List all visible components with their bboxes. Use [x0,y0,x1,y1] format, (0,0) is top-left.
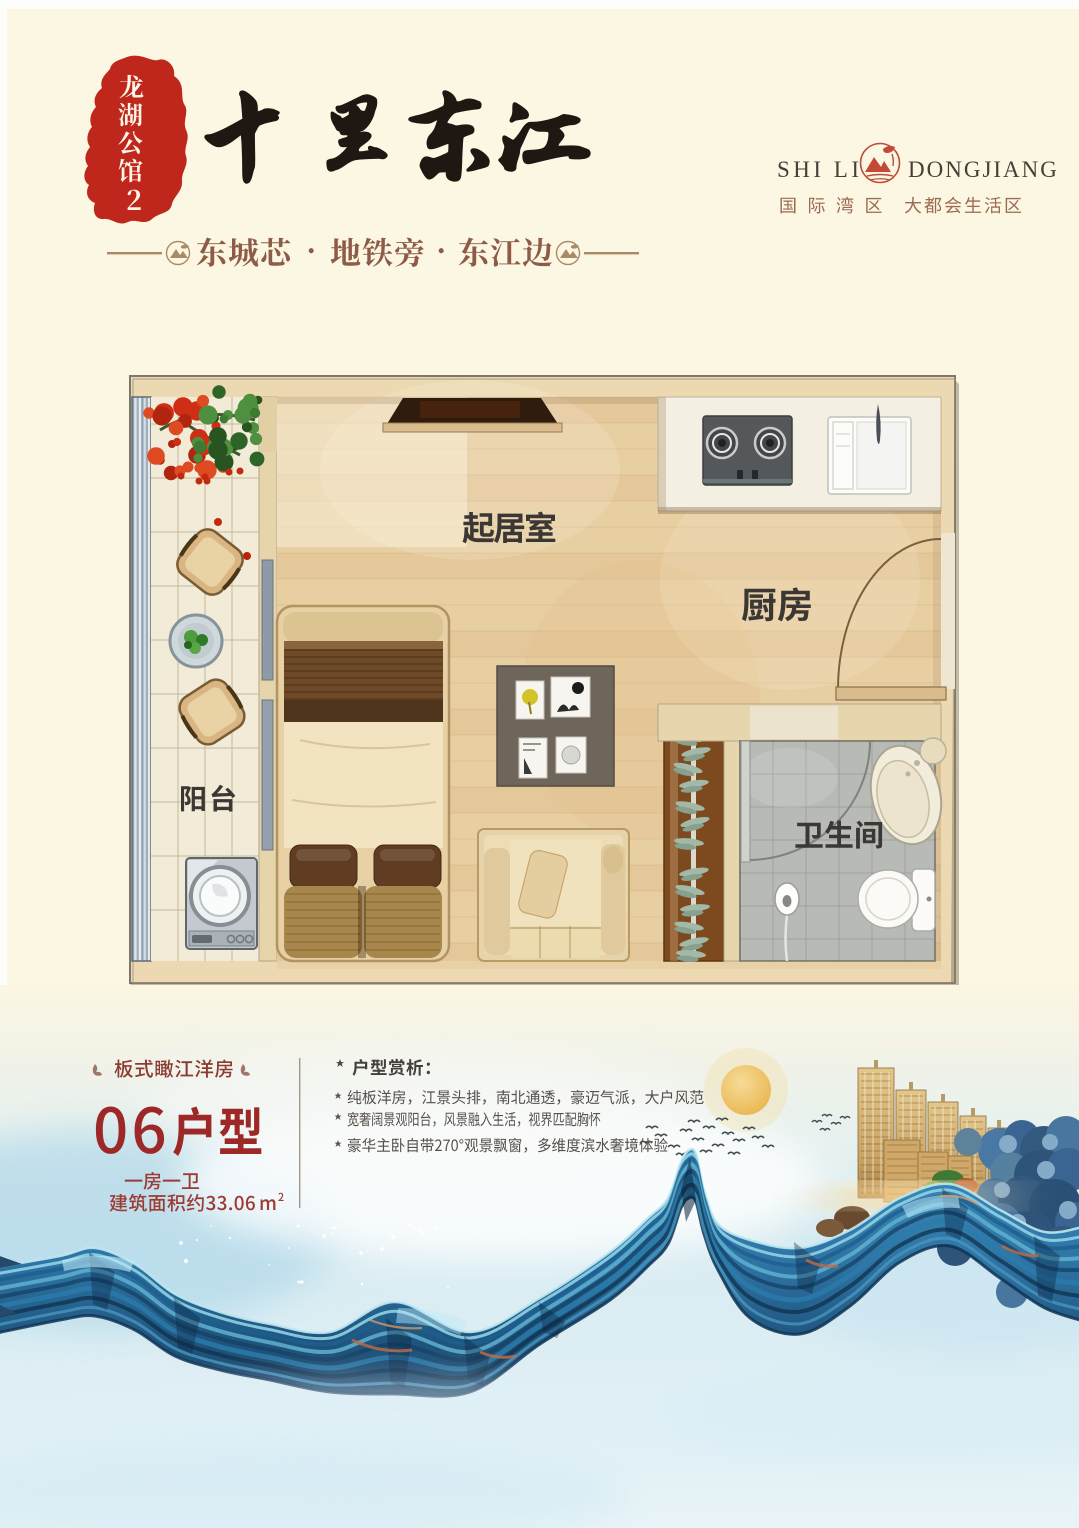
svg-text:DONGJIANG: DONGJIANG [908,157,1059,182]
svg-text:SHI LI: SHI LI [777,157,863,182]
